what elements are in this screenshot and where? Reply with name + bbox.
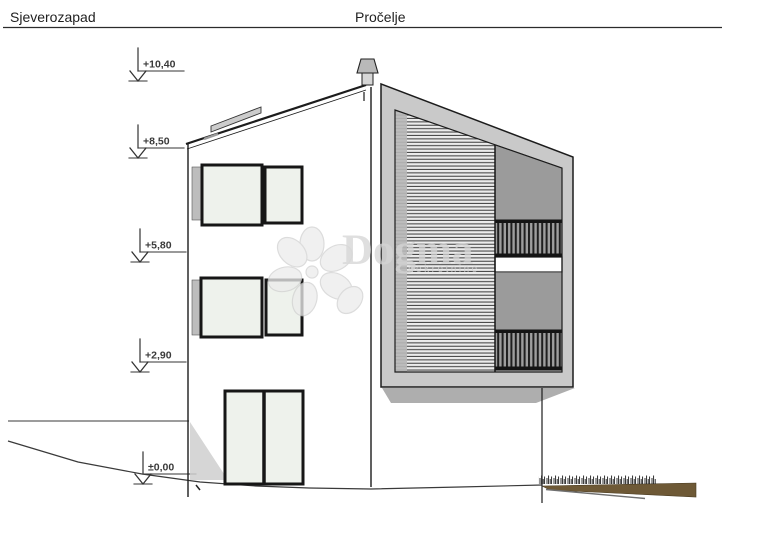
entry-door bbox=[225, 391, 303, 484]
elevation-svg: Sjeverozapad Pročelje +10,40 +8,50 +5,8 bbox=[0, 0, 766, 535]
level-label: +10,40 bbox=[143, 59, 176, 71]
balcony-railing-upper bbox=[495, 220, 562, 257]
level-label: ±0,00 bbox=[148, 462, 174, 474]
roof-accessories bbox=[204, 59, 378, 139]
view-label-right: Pročelje bbox=[355, 9, 406, 25]
level-marker-5-80: +5,80 bbox=[131, 229, 186, 262]
floor-slab-band bbox=[495, 257, 562, 272]
level-marker-8-50: +8,50 bbox=[129, 125, 184, 158]
terrain bbox=[8, 421, 696, 499]
earth-wedge bbox=[542, 483, 696, 497]
watermark-subtext: nekretnine bbox=[408, 264, 480, 275]
terrain-cut-shading bbox=[190, 422, 228, 480]
window-small-upper bbox=[265, 167, 302, 223]
level-marker-0-00: ±0,00 bbox=[134, 452, 196, 484]
balcony-railing-lower bbox=[495, 330, 562, 370]
level-label: +8,50 bbox=[143, 136, 170, 148]
window-large-middle bbox=[201, 278, 262, 337]
elevation-markers: +10,40 +8,50 +5,80 +2,90 bbox=[129, 48, 196, 484]
level-marker-2-90: +2,90 bbox=[131, 339, 186, 372]
title-block: Sjeverozapad Pročelje bbox=[3, 9, 722, 28]
roof-fascia-line bbox=[187, 90, 366, 149]
chimney-cap bbox=[357, 59, 378, 73]
view-label-left: Sjeverozapad bbox=[10, 9, 96, 25]
louver-facade bbox=[381, 84, 575, 503]
level-label: +5,80 bbox=[145, 240, 172, 252]
level-label: +2,90 bbox=[145, 350, 172, 362]
foundation-tick bbox=[196, 485, 200, 490]
grass-tufts bbox=[538, 474, 656, 484]
architectural-elevation-drawing: Sjeverozapad Pročelje +10,40 +8,50 +5,8 bbox=[0, 0, 766, 535]
window-large-upper bbox=[202, 165, 262, 225]
level-marker-10-40: +10,40 bbox=[129, 48, 184, 81]
frame-drop-shadow bbox=[382, 388, 575, 403]
chimney-neck bbox=[362, 73, 373, 85]
window-row-upper bbox=[192, 165, 302, 225]
building-elevation bbox=[8, 59, 696, 503]
middle-gray-panel bbox=[495, 272, 562, 330]
